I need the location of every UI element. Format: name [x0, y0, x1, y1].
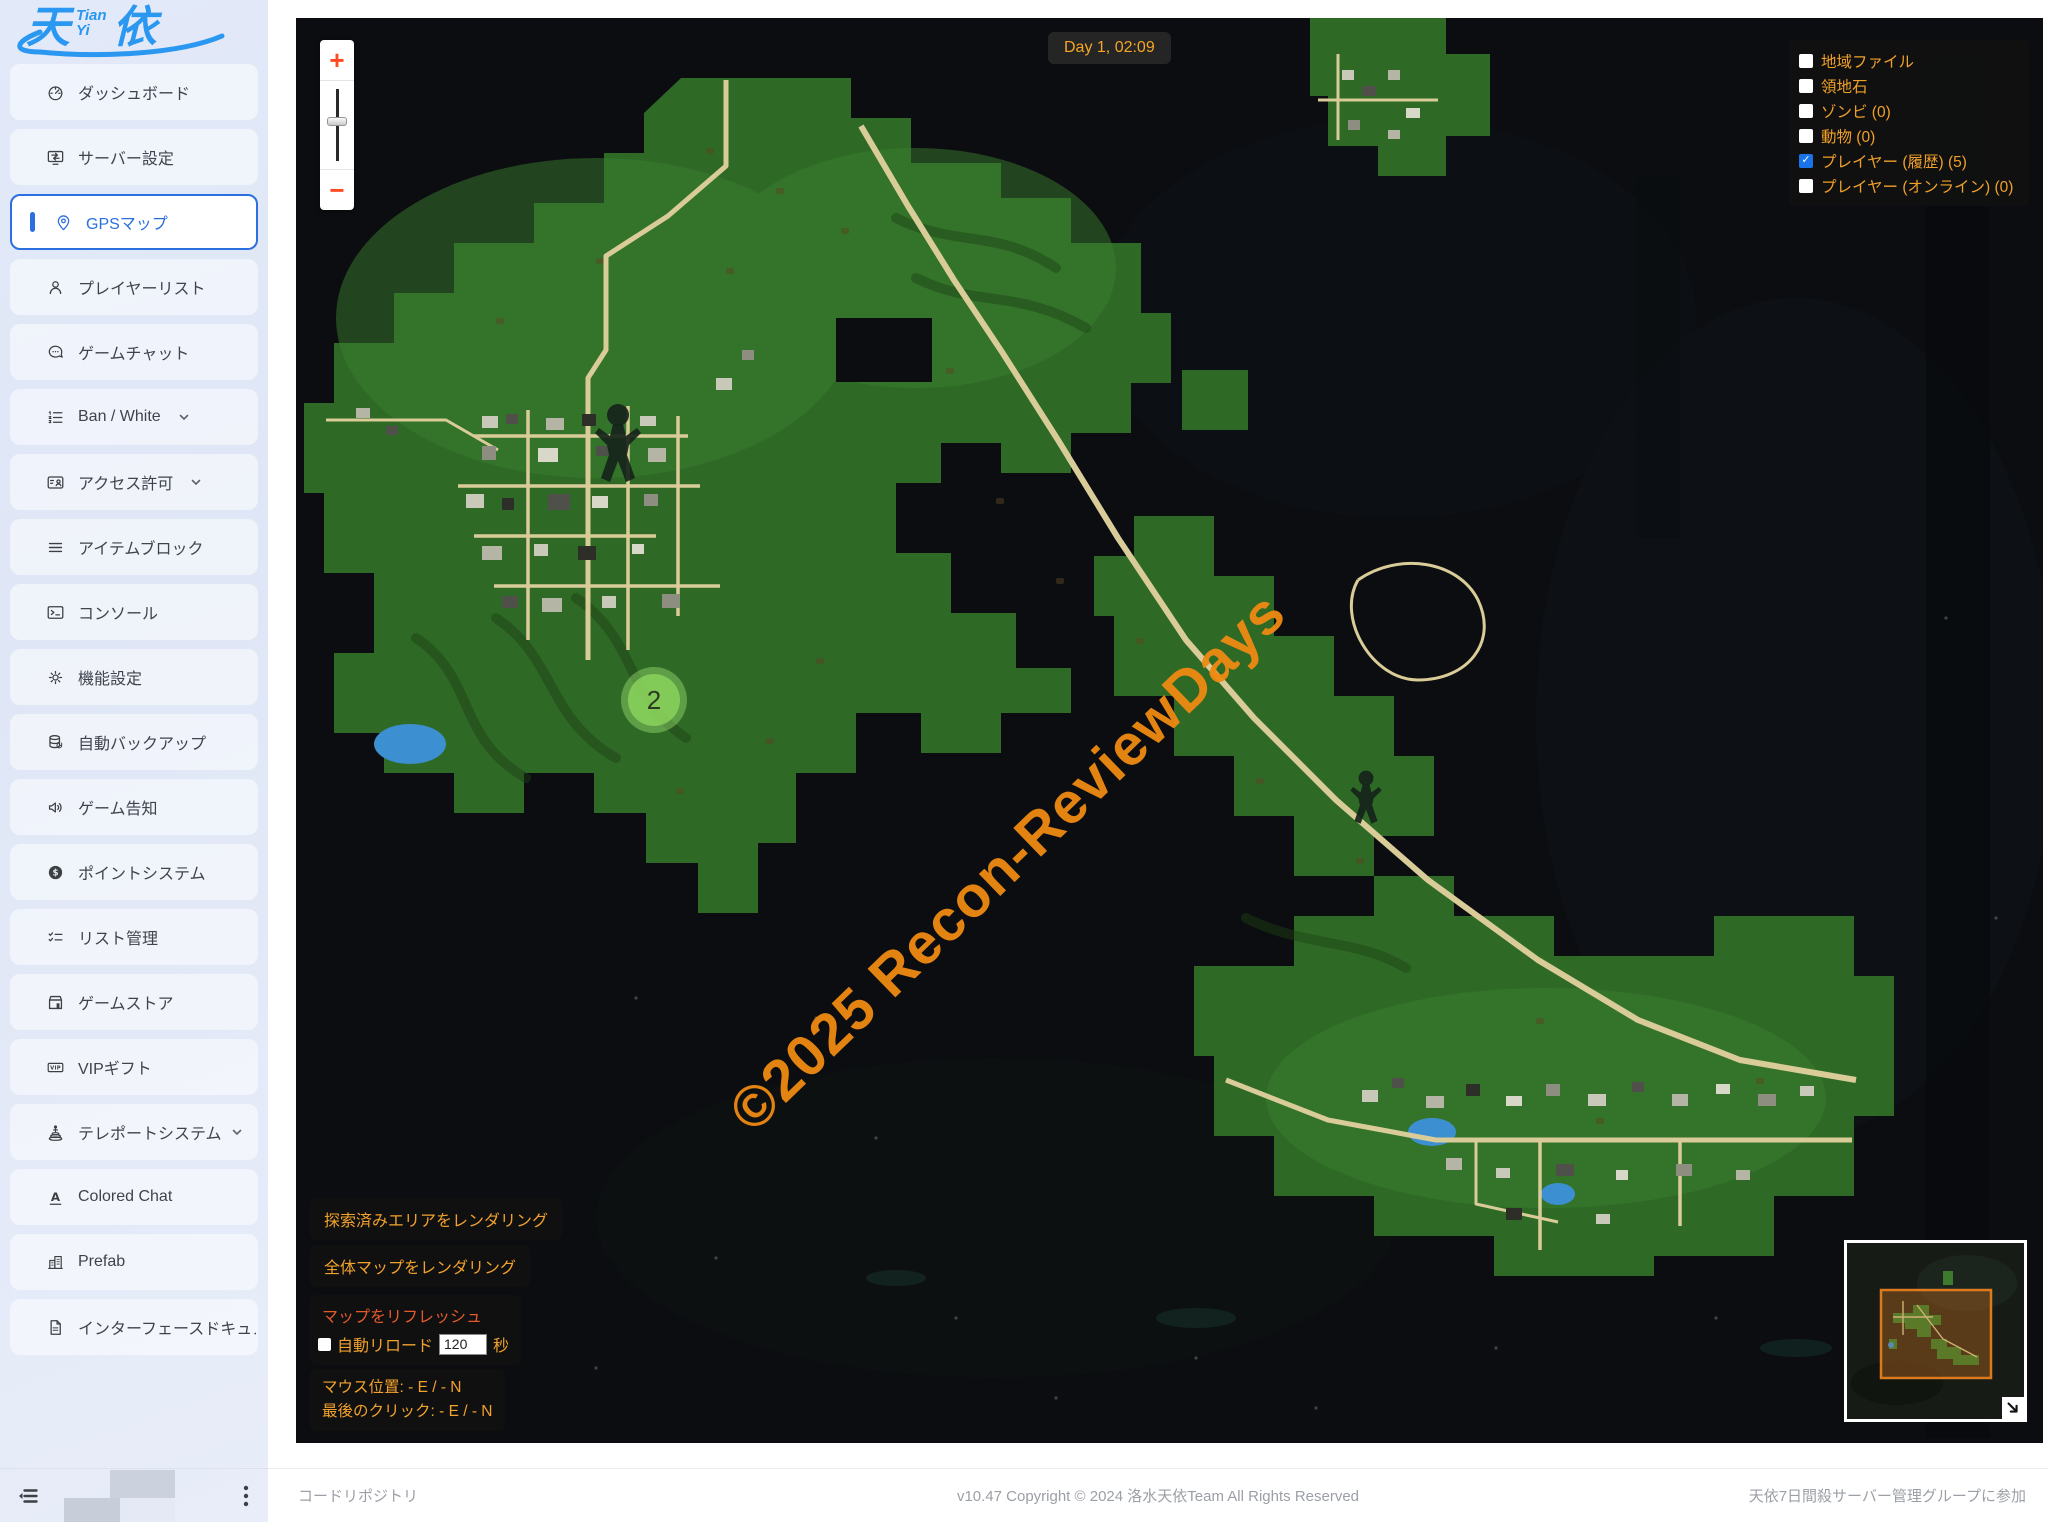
zoom-in-button[interactable]: + — [320, 40, 354, 80]
chat-icon — [46, 343, 65, 362]
app-logo: 天 Tian Yi 依 — [0, 0, 268, 62]
chevron-down-icon — [178, 411, 190, 423]
sidebar-item-label: GPSマップ — [86, 210, 168, 234]
layer-toggle-animals[interactable]: 動物 (0) — [1799, 123, 2019, 148]
active-indicator — [30, 212, 35, 232]
kebab-menu-icon[interactable] — [236, 1483, 256, 1509]
checkbox[interactable] — [1799, 54, 1813, 68]
server-group-link[interactable]: 天依7日間殺サーバー管理グループに参加 — [1749, 1485, 2026, 1506]
sidebar-item-access-permission[interactable]: アクセス許可 — [10, 454, 258, 510]
sidebar-item-label: ポイントシステム — [78, 860, 206, 884]
sidebar-item-ban-white[interactable]: Ban / White — [10, 389, 258, 445]
zoom-out-button[interactable]: − — [320, 170, 354, 210]
sidebar-item-colored-chat[interactable]: A Colored Chat — [10, 1169, 258, 1225]
chevron-down-icon — [190, 476, 202, 488]
zoom-slider-handle[interactable] — [327, 117, 347, 126]
vip-badge-icon: VIP — [46, 1058, 65, 1077]
map-zoom-control: + − — [320, 40, 354, 210]
sidebar-item-vip-gift[interactable]: VIP VIPギフト — [10, 1039, 258, 1095]
user-icon — [46, 278, 65, 297]
map-refresh-panel: マップをリフレッシュ 自動リロード 秒 — [310, 1295, 521, 1365]
minimap[interactable] — [1844, 1240, 2027, 1422]
storefront-icon — [46, 993, 65, 1012]
sidebar-item-label: 自動バックアップ — [78, 730, 206, 754]
id-card-icon — [46, 473, 65, 492]
sidebar-item-feature-settings[interactable]: 機能設定 — [10, 649, 258, 705]
menu-lines-icon — [46, 538, 65, 557]
gps-map-canvas[interactable]: 2 ©2025 Recon-ReviewDays Day 1, 02:09 + … — [296, 18, 2043, 1443]
checkbox[interactable] — [1799, 179, 1813, 193]
sidebar-item-label: Colored Chat — [78, 1188, 172, 1206]
minimap-thumbnail — [1847, 1243, 2024, 1419]
sidebar-item-game-announce[interactable]: ゲーム告知 — [10, 779, 258, 835]
zoom-slider[interactable] — [320, 81, 354, 169]
sidebar-item-prefab[interactable]: Prefab — [10, 1234, 258, 1290]
sidebar-item-item-block[interactable]: アイテムブロック — [10, 519, 258, 575]
checkbox[interactable] — [1799, 79, 1813, 93]
layer-label: 領地石 — [1821, 75, 1868, 97]
layer-toggle-region-files[interactable]: 地域ファイル — [1799, 48, 2019, 73]
sidebar-bottom-bar — [0, 1468, 268, 1522]
marker-cluster[interactable]: 2 — [621, 667, 687, 733]
layer-toggle-players-history[interactable]: プレイヤー (履歴) (5) — [1799, 148, 2019, 173]
sidebar-collapse-icon[interactable] — [16, 1484, 40, 1508]
database-backup-icon — [46, 733, 65, 752]
sidebar-item-dashboard[interactable]: ダッシュボード — [10, 64, 258, 120]
refresh-map-button[interactable]: マップをリフレッシュ — [322, 1303, 509, 1327]
game-day-time-badge: Day 1, 02:09 — [1048, 32, 1171, 64]
sidebar-nav: ダッシュボード サーバー設定 GPSマップ プレイヤーリスト ゲームチャット — [0, 64, 268, 1364]
sidebar-item-label: インターフェースドキュメント — [78, 1315, 258, 1339]
sidebar-item-list-management[interactable]: リスト管理 — [10, 909, 258, 965]
layer-label: 地域ファイル — [1821, 50, 1914, 72]
minimap-collapse-button[interactable] — [2002, 1397, 2024, 1419]
svg-text:A: A — [51, 1190, 61, 1204]
sidebar-item-console[interactable]: コンソール — [10, 584, 258, 640]
sidebar-item-point-system[interactable]: $ ポイントシステム — [10, 844, 258, 900]
sidebar-item-interface-docs[interactable]: インターフェースドキュメント — [10, 1299, 258, 1355]
auto-reload-checkbox[interactable] — [318, 1338, 331, 1351]
logo-tian: Tian — [76, 8, 107, 23]
sidebar-item-label: アクセス許可 — [78, 470, 173, 494]
letter-a-icon: A — [46, 1188, 65, 1207]
auto-reload-label: 自動リロード — [337, 1332, 433, 1356]
sidebar-item-label: Ban / White — [78, 408, 161, 426]
layer-toggle-players-online[interactable]: プレイヤー (オンライン) (0) — [1799, 173, 2019, 198]
sidebar-item-label: アイテムブロック — [78, 535, 203, 559]
reload-interval-input[interactable] — [439, 1334, 487, 1355]
sidebar-item-label: ゲーム告知 — [78, 795, 158, 819]
terminal-icon — [46, 603, 65, 622]
sidebar: 天 Tian Yi 依 ダッシュボード サーバー設定 — [0, 0, 268, 1522]
sidebar-item-label: リスト管理 — [78, 925, 158, 949]
building-icon — [46, 1253, 65, 1272]
sidebar-item-game-chat[interactable]: ゲームチャット — [10, 324, 258, 380]
layer-toggle-zombies[interactable]: ゾンビ (0) — [1799, 98, 2019, 123]
checklist-icon — [46, 928, 65, 947]
code-repository-link[interactable]: コードリポジトリ — [298, 1485, 418, 1506]
app-window: 天 Tian Yi 依 ダッシュボード サーバー設定 — [0, 0, 2048, 1522]
sidebar-item-label: Prefab — [78, 1253, 125, 1271]
sidebar-item-label: テレポートシステム — [78, 1120, 222, 1144]
svg-text:VIP: VIP — [50, 1065, 61, 1071]
checkbox[interactable] — [1799, 129, 1813, 143]
megaphone-icon — [46, 798, 65, 817]
sidebar-item-label: プレイヤーリスト — [78, 275, 206, 299]
sidebar-item-auto-backup[interactable]: 自動バックアップ — [10, 714, 258, 770]
server-settings-icon — [46, 148, 65, 167]
sidebar-item-label: ゲームストア — [78, 990, 174, 1014]
sidebar-item-game-store[interactable]: ゲームストア — [10, 974, 258, 1030]
map-layers-panel: 地域ファイル 領地石 ゾンビ (0) 動物 (0) プレイヤー (履歴) (5)… — [1789, 40, 2029, 206]
render-explored-area-button[interactable]: 探索済みエリアをレンダリング — [310, 1198, 562, 1240]
svg-text:2: 2 — [647, 685, 661, 715]
sidebar-item-teleport-system[interactable]: テレポートシステム — [10, 1104, 258, 1160]
sidebar-item-label: VIPギフト — [78, 1055, 152, 1079]
layer-label: プレイヤー (オンライン) (0) — [1821, 175, 2013, 197]
gear-icon — [46, 668, 65, 687]
checkbox[interactable] — [1799, 104, 1813, 118]
ordered-list-icon — [46, 408, 65, 427]
svg-text:$: $ — [52, 868, 58, 878]
sidebar-item-label: ゲームチャット — [78, 340, 189, 364]
sidebar-item-label: コンソール — [78, 600, 158, 624]
seconds-unit-label: 秒 — [493, 1332, 509, 1356]
sidebar-item-player-list[interactable]: プレイヤーリスト — [10, 259, 258, 315]
sidebar-item-label: ダッシュボード — [78, 80, 190, 104]
gauge-icon — [46, 83, 65, 102]
mouse-position-readout: マウス位置: - E / - N — [322, 1376, 493, 1400]
arrow-down-right-icon — [2005, 1400, 2021, 1416]
layer-label: プレイヤー (履歴) (5) — [1821, 150, 1967, 172]
sidebar-item-label: 機能設定 — [78, 665, 142, 689]
footer: コードリポジトリ v10.47 Copyright © 2024 洛水天依Tea… — [268, 1468, 2048, 1522]
document-icon — [46, 1318, 65, 1337]
layer-label: ゾンビ (0) — [1821, 100, 1891, 122]
sidebar-item-gps-map[interactable]: GPSマップ — [10, 194, 258, 250]
sidebar-item-server-settings[interactable]: サーバー設定 — [10, 129, 258, 185]
dollar-coin-icon: $ — [46, 863, 65, 882]
chevron-down-icon — [231, 1126, 243, 1138]
teleport-icon — [46, 1123, 65, 1142]
checkbox[interactable] — [1799, 154, 1813, 168]
layer-label: 動物 (0) — [1821, 125, 1875, 147]
render-full-map-button[interactable]: 全体マップをレンダリング — [310, 1245, 530, 1287]
sidebar-item-label: サーバー設定 — [78, 145, 174, 169]
last-click-readout: 最後のクリック: - E / - N — [322, 1400, 493, 1424]
logo-swoosh-decoration — [10, 28, 240, 62]
map-pin-icon — [54, 213, 73, 232]
layer-toggle-land-claims[interactable]: 領地石 — [1799, 73, 2019, 98]
coordinates-panel: マウス位置: - E / - N 最後のクリック: - E / - N — [310, 1369, 505, 1431]
